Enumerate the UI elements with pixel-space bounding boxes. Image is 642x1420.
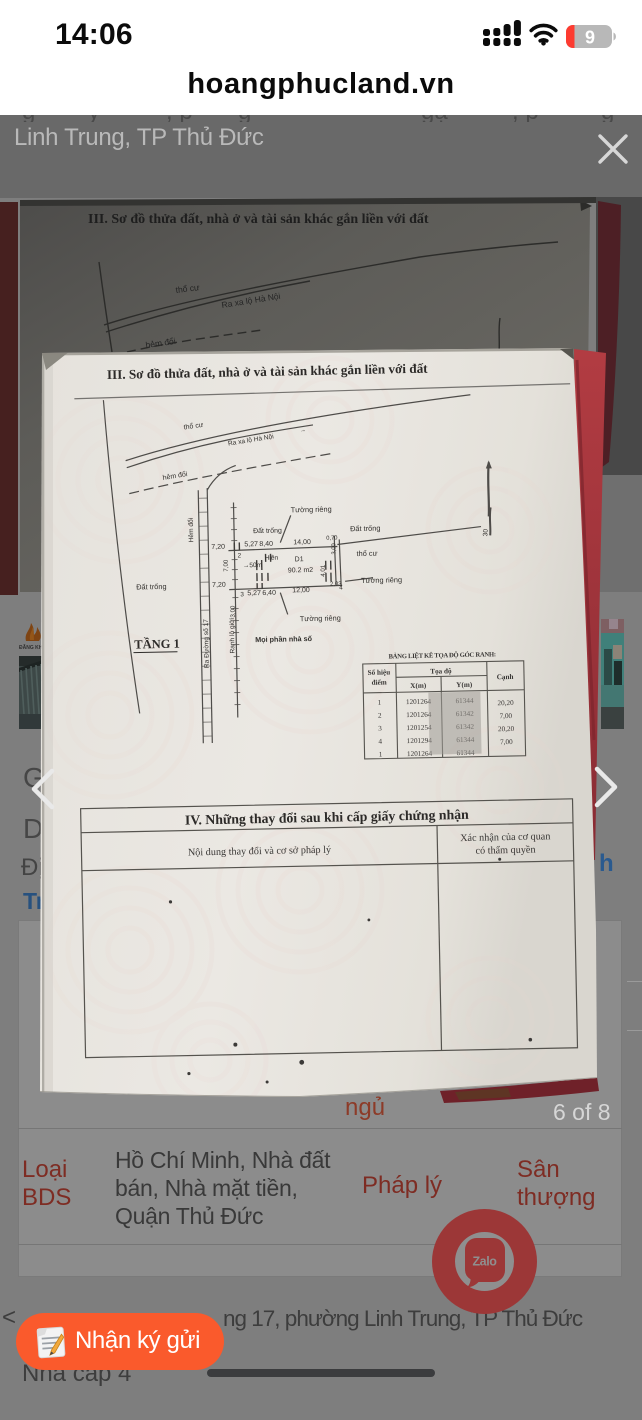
svg-text:→: → <box>299 427 306 434</box>
svg-text:Mọi phần nhà số: Mọi phần nhà số <box>255 634 312 644</box>
svg-text:7,20: 7,20 <box>211 544 225 551</box>
svg-text:điểm: điểm <box>371 678 386 687</box>
svg-text:30: 30 <box>482 528 489 536</box>
svg-text:90.2 m2: 90.2 m2 <box>288 567 314 575</box>
svg-text:Ranh lộ giới: Ranh lộ giới <box>229 618 237 654</box>
svg-text:7,20: 7,20 <box>212 582 226 589</box>
svg-text:1: 1 <box>379 751 383 759</box>
svg-text:2: 2 <box>237 552 241 559</box>
svg-text:3,00: 3,00 <box>230 605 237 618</box>
svg-text:1201264: 1201264 <box>407 750 433 759</box>
svg-text:1: 1 <box>378 699 382 707</box>
svg-text:Hẻm đổi: Hẻm đổi <box>187 517 196 542</box>
svg-text:Cạnh: Cạnh <box>497 673 514 681</box>
svg-text:12,00: 12,00 <box>292 587 310 594</box>
svg-text:Zalo: Zalo <box>472 1255 497 1269</box>
svg-text:1201264: 1201264 <box>406 698 432 707</box>
svg-text:4,01: 4,01 <box>320 564 327 577</box>
svg-text:4: 4 <box>339 584 343 591</box>
svg-text:Tường riêng: Tường riêng <box>291 505 332 515</box>
svg-text:Tường riêng: Tường riêng <box>361 575 402 585</box>
svg-text:1201294: 1201294 <box>407 737 433 746</box>
svg-text:3: 3 <box>378 725 382 733</box>
svg-text:Xác nhận của cơ quan: Xác nhận của cơ quan <box>460 831 550 844</box>
svg-text:→50m: →50m <box>243 562 263 569</box>
svg-text:7,00: 7,00 <box>223 559 230 572</box>
svg-text:20,20: 20,20 <box>497 699 514 707</box>
svg-text:7,00: 7,00 <box>500 738 513 746</box>
svg-text:có thẩm quyền: có thẩm quyền <box>475 845 535 857</box>
svg-text:Tường riêng: Tường riêng <box>300 613 341 623</box>
svg-text:14,00: 14,00 <box>293 539 311 546</box>
svg-text:1201254: 1201254 <box>406 724 432 733</box>
svg-text:6,40: 6,40 <box>262 590 276 597</box>
svg-text:5,27: 5,27 <box>244 541 258 548</box>
svg-text:III. Sơ đồ thửa đất, nhà ở và: III. Sơ đồ thửa đất, nhà ở và tài sản kh… <box>88 212 429 227</box>
svg-text:Tọa độ: Tọa độ <box>430 667 452 675</box>
svg-text:3: 3 <box>240 591 244 598</box>
svg-text:0,70: 0,70 <box>326 535 337 541</box>
svg-text:20,20: 20,20 <box>498 725 515 733</box>
svg-text:7,00: 7,00 <box>499 712 512 720</box>
svg-text:Y(m): Y(m) <box>456 681 473 689</box>
svg-text:Đất trống: Đất trống <box>136 582 167 592</box>
svg-text:9: 9 <box>585 28 595 48</box>
svg-text:Đất trống: Đất trống <box>350 524 381 534</box>
svg-text:1201264: 1201264 <box>406 711 432 720</box>
svg-text:D1: D1 <box>295 556 304 563</box>
svg-text:Số hiệu: Số hiệu <box>368 667 391 676</box>
svg-text:8,40: 8,40 <box>259 541 273 548</box>
svg-text:4: 4 <box>378 738 382 746</box>
svg-text:5,27: 5,27 <box>247 590 261 597</box>
svg-text:thổ cư: thổ cư <box>356 549 377 558</box>
svg-text:X(m): X(m) <box>410 682 427 690</box>
svg-text:Hiên: Hiên <box>265 555 279 562</box>
svg-text:2: 2 <box>378 712 382 720</box>
svg-text:TẦNG 1: TẦNG 1 <box>134 636 180 652</box>
svg-text:3,00: 3,00 <box>331 543 337 554</box>
